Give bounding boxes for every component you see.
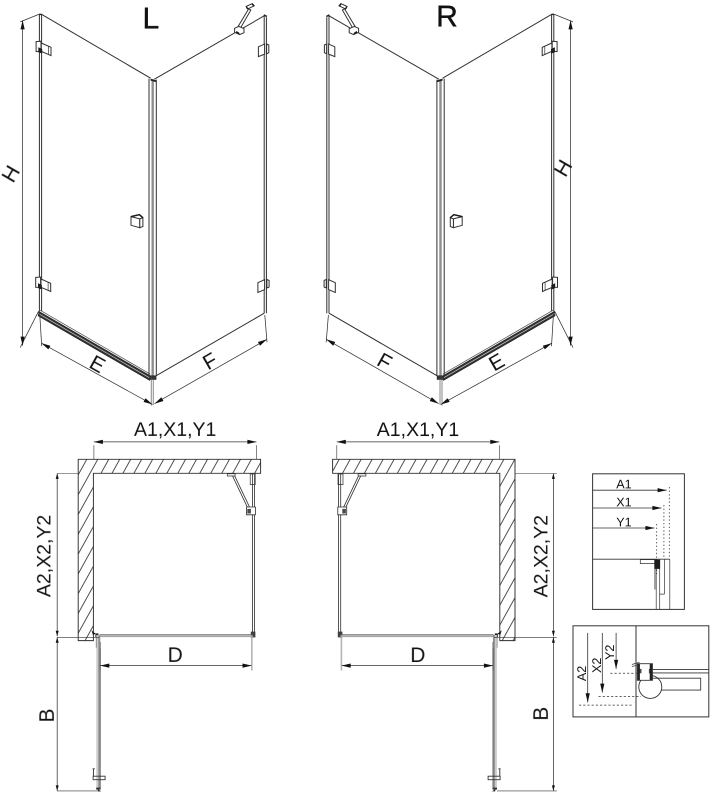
svg-text:B: B (530, 707, 553, 721)
svg-text:A2,X2,Y2: A2,X2,Y2 (33, 515, 55, 597)
svg-text:B: B (36, 708, 59, 722)
svg-text:A1,X1,Y1: A1,X1,Y1 (134, 419, 216, 441)
svg-text:L: L (143, 2, 160, 35)
svg-text:A1,X1,Y1: A1,X1,Y1 (377, 419, 459, 441)
svg-text:A2,X2,Y2: A2,X2,Y2 (530, 515, 552, 597)
svg-text:X2: X2 (590, 658, 604, 673)
svg-text:Y1: Y1 (616, 515, 631, 529)
svg-text:X1: X1 (616, 495, 631, 509)
svg-text:D: D (410, 644, 425, 667)
svg-text:A2: A2 (575, 666, 589, 681)
svg-text:R: R (436, 0, 458, 33)
svg-text:D: D (168, 644, 183, 667)
svg-text:Y2: Y2 (603, 645, 617, 660)
svg-text:A1: A1 (616, 477, 631, 491)
